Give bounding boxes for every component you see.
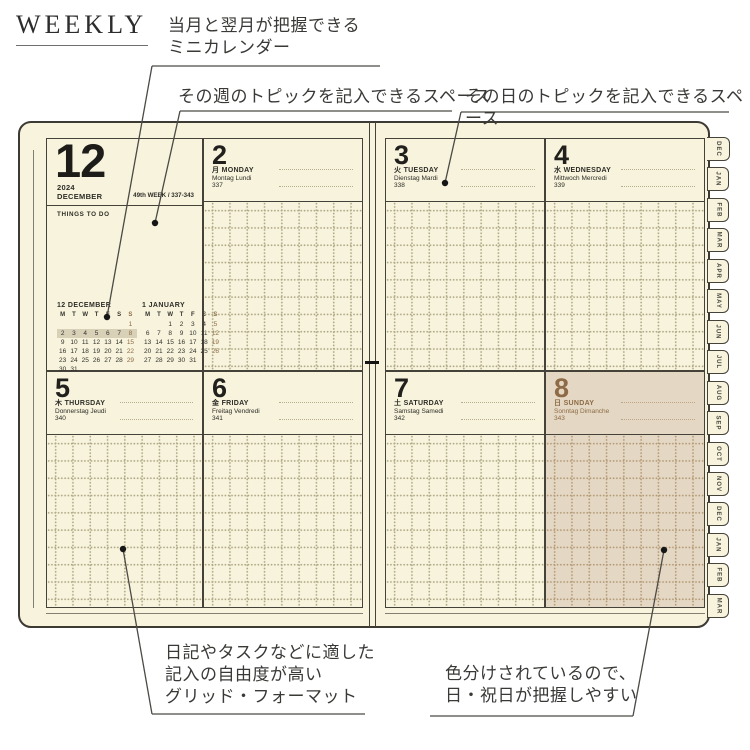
month-tab-feb-2: FEB [707, 198, 729, 222]
day-translations: Montag Lundi [212, 175, 254, 183]
mini-calendar-date: 21 [113, 347, 124, 356]
weekday-header-row: MTWTFSS [57, 311, 137, 320]
mini-calendar-date [68, 320, 79, 329]
mini-calendar-date: 26 [91, 356, 102, 365]
annotation-day-topic: その日のトピックを記入できるスペース [465, 86, 750, 130]
page-title: WEEKLY [16, 10, 148, 46]
weekday-letter: S [113, 311, 124, 320]
day-cell-3: 3 火 TUESDAY Dienstag Mardi 338 [385, 138, 545, 371]
day-cell-4: 4 水 WEDNESDAY Mittwoch Mercredi 339 [545, 138, 705, 371]
weekday-letter: M [57, 311, 68, 320]
mini-calendar-date: 17 [187, 338, 198, 347]
month-tab-label: JUL [715, 355, 721, 369]
mini-calendar-date: 22 [165, 347, 176, 356]
day-cell-6: 6 金 FRIDAY Freitag Vendredi 341 [203, 371, 363, 608]
month-name-label: DECEMBER [57, 193, 102, 202]
mini-calendar-date: 6 [142, 329, 153, 338]
month-tab-sep-9: SEP [707, 411, 729, 435]
mini-calendar-date: 24 [68, 356, 79, 365]
month-tab-label: JAN [715, 172, 721, 187]
mini-calendar-date: 13 [102, 338, 113, 347]
month-tab-mar-15: MAR [707, 594, 729, 618]
mini-calendar-date: 15 [125, 338, 136, 347]
day-header: 水 WEDNESDAY Mittwoch Mercredi 339 [554, 167, 611, 190]
weekday-letter: T [68, 311, 79, 320]
annotation-mini-calendar: 当月と翌月が把握できる ミニカレンダー [168, 15, 360, 59]
mini-calendar-date: 23 [176, 347, 187, 356]
topic-dotted-line [621, 419, 695, 420]
day-of-year: 341 [212, 415, 260, 423]
month-tab-label: FEB [715, 202, 721, 217]
mini-calendar-date: 27 [102, 356, 113, 365]
topic-dotted-line [279, 402, 353, 403]
day-name-label: 土 SATURDAY [394, 400, 444, 408]
mini-calendar-date: 3 [68, 329, 79, 338]
month-tab-label: APR [715, 263, 721, 279]
mini-calendar-date [91, 320, 102, 329]
topic-dotted-line [279, 419, 353, 420]
day-header: 月 MONDAY Montag Lundi 337 [212, 167, 254, 190]
month-tab-jun-6: JUN [707, 320, 729, 344]
day-of-year: 337 [212, 182, 254, 190]
day-header: 木 THURSDAY Donnerstag Jeudi 340 [55, 400, 106, 423]
day-of-year: 340 [55, 415, 106, 423]
mini-calendar-date: 7 [153, 329, 164, 338]
grid-writing-area [546, 434, 704, 607]
weekday-letter: F [187, 311, 198, 320]
weekday-letter: M [142, 311, 153, 320]
mini-calendar-date [113, 320, 124, 329]
week-info-label: 49th WEEK / 337-343 [133, 192, 194, 199]
annotation-grid-format: 日記やタスクなどに適した 記入の自由度が高い グリッド・フォーマット [165, 642, 375, 708]
mini-calendar-date: 1 [125, 320, 136, 329]
topic-dotted-line [461, 169, 535, 170]
weekday-letter: W [80, 311, 91, 320]
page-canvas: WEEKLY 12 2024 DECEMBER 49th WEEK / 337-… [0, 0, 750, 750]
mini-calendar-date: 20 [142, 347, 153, 356]
month-tab-label: OCT [715, 446, 721, 462]
month-tab-label: JUN [715, 324, 721, 339]
mini-calendar-week-row: 23242526272829 [57, 356, 137, 365]
mini-calendar-date: 14 [153, 338, 164, 347]
month-tab-label: SEP [715, 416, 721, 431]
mini-calendar-title: 12 DECEMBER [57, 302, 137, 309]
mini-calendar-date: 16 [176, 338, 187, 347]
day-header: 金 FRIDAY Freitag Vendredi 341 [212, 400, 260, 423]
mini-calendar-date: 28 [153, 356, 164, 365]
grid-writing-area [386, 201, 544, 370]
month-tab-label: FEB [715, 568, 721, 583]
topic-dotted-line [461, 402, 535, 403]
weekday-letter: T [176, 311, 187, 320]
grid-writing-area [204, 434, 362, 607]
day-cell-5: 5 木 THURSDAY Donnerstag Jeudi 340 [46, 371, 203, 608]
mini-calendar-date: 14 [113, 338, 124, 347]
topic-dotted-line [621, 169, 695, 170]
mini-calendar-date [102, 320, 113, 329]
mini-calendar-date: 10 [68, 338, 79, 347]
month-tab-oct-10: OCT [707, 442, 729, 466]
month-cell-divider [47, 205, 202, 206]
mini-calendar-date: 10 [187, 329, 198, 338]
day-name-label: 月 MONDAY [212, 167, 254, 175]
mini-calendar-week-row: 2345678 [57, 329, 137, 338]
mini-calendar-date: 12 [91, 338, 102, 347]
topic-dotted-line [279, 186, 353, 187]
grid-writing-area [546, 201, 704, 370]
mini-calendar-date: 9 [57, 338, 68, 347]
grid-writing-area [386, 434, 544, 607]
month-number: 12 [55, 133, 105, 188]
mini-calendar-date: 27 [142, 356, 153, 365]
year-month-label: 2024 DECEMBER [57, 184, 102, 201]
mini-calendar-date: 21 [153, 347, 164, 356]
grid-writing-area [47, 434, 202, 607]
month-tab-feb-14: FEB [707, 563, 729, 587]
day-header: 火 TUESDAY Dienstag Mardi 338 [394, 167, 438, 190]
month-tab-jan-1: JAN [707, 167, 729, 191]
month-tab-apr-4: APR [707, 259, 729, 283]
mini-calendar-date: 19 [91, 347, 102, 356]
mini-calendar-date: 18 [80, 347, 91, 356]
topic-dotted-line [120, 402, 193, 403]
month-tab-label: MAY [715, 293, 721, 309]
month-tab-may-5: MAY [707, 289, 729, 313]
day-name-label: 火 TUESDAY [394, 167, 438, 175]
annotation-week-topic: その週のトピックを記入できるスペース [178, 86, 491, 108]
day-name-label: 金 FRIDAY [212, 400, 260, 408]
mini-calendar-date: 2 [57, 329, 68, 338]
month-tab-label: DEC [715, 507, 721, 523]
month-tab-jul-7: JUL [707, 350, 729, 374]
month-tab-label: JAN [715, 537, 721, 552]
day-translations: Sonntag Dimanche [554, 408, 609, 416]
weekday-letter: S [125, 311, 136, 320]
mini-calendar-date: 5 [91, 329, 102, 338]
mini-calendar-date: 25 [80, 356, 91, 365]
day-cell-7: 7 土 SATURDAY Samstag Samedi 342 [385, 371, 545, 608]
topic-dotted-line [461, 186, 535, 187]
mini-calendar-date: 16 [57, 347, 68, 356]
day-header: 土 SATURDAY Samstag Samedi 342 [394, 400, 444, 423]
weekday-letter: T [91, 311, 102, 320]
month-tab-label: MAR [715, 597, 721, 614]
weekday-letter: T [153, 311, 164, 320]
mini-calendar-date: 20 [102, 347, 113, 356]
day-of-year: 343 [554, 415, 609, 423]
day-translations: Donnerstag Jeudi [55, 408, 106, 416]
topic-dotted-line [621, 402, 695, 403]
weekday-letter: W [165, 311, 176, 320]
spine-line-right [375, 122, 376, 627]
mini-calendar-date: 29 [125, 356, 136, 365]
weekday-letter: F [102, 311, 113, 320]
month-tab-mar-3: MAR [707, 228, 729, 252]
month-tab-aug-8: AUG [707, 381, 729, 405]
day-name-label: 木 THURSDAY [55, 400, 106, 408]
mini-calendar-date: 22 [125, 347, 136, 356]
mini-calendar-date: 8 [125, 329, 136, 338]
day-translations: Freitag Vendredi [212, 408, 260, 416]
topic-dotted-line [461, 419, 535, 420]
day-translations: Mittwoch Mercredi [554, 175, 611, 183]
day-of-year: 338 [394, 182, 438, 190]
mini-calendar-date: 28 [113, 356, 124, 365]
mini-calendar-date: 1 [165, 320, 176, 329]
day-cell-2: 2 月 MONDAY Montag Lundi 337 [203, 138, 363, 371]
things-to-do-label: THINGS TO DO [57, 211, 110, 218]
topic-dotted-line [120, 419, 193, 420]
day-header: 日 SUNDAY Sonntag Dimanche 343 [554, 400, 609, 423]
mini-calendar-week-row: 16171819202122 [57, 347, 137, 356]
mini-calendar-date: 23 [57, 356, 68, 365]
mini-calendar-date: 2 [176, 320, 187, 329]
day-translations: Samstag Samedi [394, 408, 444, 416]
mini-calendar-date: 7 [113, 329, 124, 338]
month-tab-label: MAR [715, 232, 721, 249]
spine-center-mark [365, 361, 379, 364]
mini-calendar-date: 8 [165, 329, 176, 338]
mini-calendar-week-row: 9101112131415 [57, 338, 137, 347]
spine-line-left [369, 122, 370, 627]
mini-calendar-date: 9 [176, 329, 187, 338]
mini-calendar-date [80, 320, 91, 329]
mini-calendar-date: 11 [80, 338, 91, 347]
day-of-year: 339 [554, 182, 611, 190]
mini-calendar-date: 17 [68, 347, 79, 356]
day-name-label: 水 WEDNESDAY [554, 167, 611, 175]
mini-calendar-current-month: 12 DECEMBERMTWTFSS1234567891011121314151… [57, 302, 137, 374]
mini-calendar-date: 15 [165, 338, 176, 347]
mini-calendar-date: 29 [165, 356, 176, 365]
mini-calendar-week-row: 1 [57, 320, 137, 329]
mini-calendar-date [57, 320, 68, 329]
topic-dotted-line [621, 186, 695, 187]
annotation-color-coded: 色分けされているので、 日・祝日が把握しやすい [445, 663, 637, 707]
month-tab-nov-11: NOV [707, 472, 729, 496]
mini-calendar-date [153, 320, 164, 329]
day-translations: Dienstag Mardi [394, 175, 438, 183]
month-tab-label: NOV [715, 476, 721, 492]
month-tab-jan-13: JAN [707, 533, 729, 557]
day-cell-8: 8 日 SUNDAY Sonntag Dimanche 343 [545, 371, 705, 608]
page-stack-edge-left [33, 150, 34, 608]
mini-calendar-date: 13 [142, 338, 153, 347]
month-tab-dec-0: DEC [707, 137, 730, 161]
month-tab-dec-12: DEC [707, 502, 729, 526]
mini-calendar-date: 24 [187, 347, 198, 356]
mini-calendar-date: 3 [187, 320, 198, 329]
topic-dotted-line [279, 169, 353, 170]
month-tab-label: DEC [715, 141, 721, 157]
mini-calendar-date [142, 320, 153, 329]
mini-calendar-date: 4 [80, 329, 91, 338]
page-stack-edge-bottom-left [46, 613, 363, 614]
month-cell: 12 2024 DECEMBER 49th WEEK / 337-343 THI… [46, 138, 203, 371]
month-tab-label: AUG [715, 384, 721, 400]
mini-calendar-date: 30 [176, 356, 187, 365]
mini-calendar-date: 6 [102, 329, 113, 338]
page-stack-edge-bottom-right [385, 613, 705, 614]
mini-calendar-date: 31 [187, 356, 198, 365]
day-of-year: 342 [394, 415, 444, 423]
grid-writing-area [204, 201, 362, 370]
day-name-label: 日 SUNDAY [554, 400, 609, 408]
